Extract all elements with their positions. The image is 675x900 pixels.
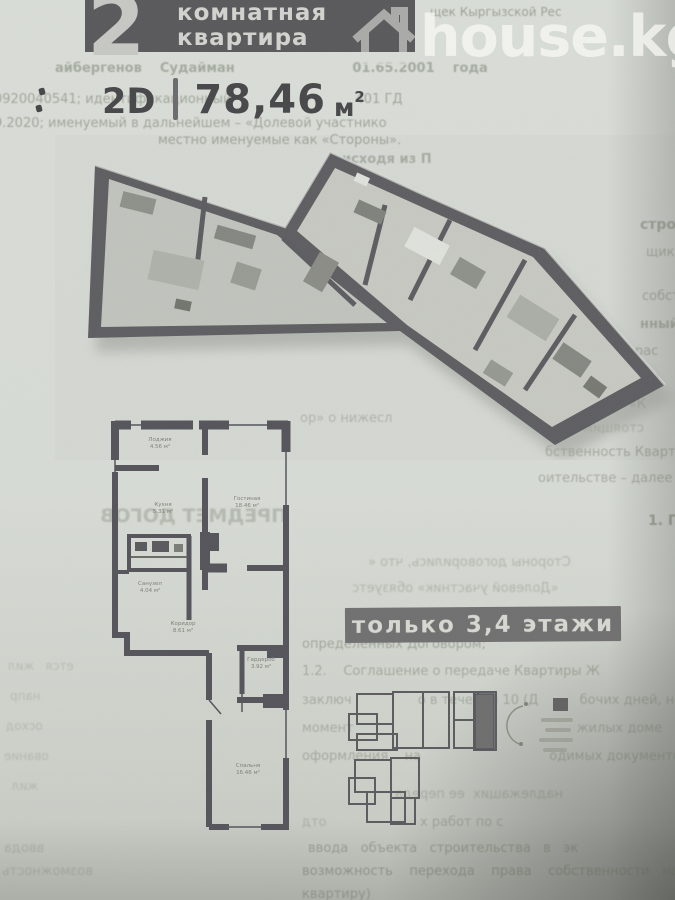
overview-plan xyxy=(345,688,585,888)
room-label: Кухня5.31 м² xyxy=(153,502,173,515)
room-label: Коридор8.61 м² xyxy=(171,621,196,634)
compass-dot-s xyxy=(519,742,523,746)
overview-legend xyxy=(507,698,573,752)
stray-mark xyxy=(36,88,48,114)
compass-dot-n xyxy=(524,702,528,706)
plan-title: 2D 78,46 м2 xyxy=(102,74,365,120)
legend-text-smudge xyxy=(539,718,573,752)
rooms-banner-label: комнатная квартира xyxy=(177,1,327,51)
rooms-banner-line1: комнатная xyxy=(177,1,327,26)
room-label: Гардероб3.92 м² xyxy=(247,657,275,670)
overview-units xyxy=(349,692,496,824)
room-label: Лоджия4.56 м² xyxy=(148,437,171,450)
legend-highlight-swatch xyxy=(553,698,568,711)
house-icon xyxy=(352,5,416,65)
rooms-banner-line2: квартира xyxy=(177,26,327,51)
listing-photo: щек Кыргызской Ресайбергенов Судайман 01… xyxy=(0,0,675,900)
highlighted-unit xyxy=(475,694,494,749)
compass-arc xyxy=(507,706,523,744)
rooms-count: 2 xyxy=(87,0,143,68)
floors-badge: только 3,4 этажи xyxy=(345,606,621,643)
area-unit: м2 xyxy=(334,90,365,120)
area-value: 78,46 xyxy=(194,80,326,120)
watermark-text: house.kg xyxy=(420,4,675,70)
view-label: 2D xyxy=(102,85,155,120)
room-label: Гостиная18.46 м² xyxy=(234,496,261,509)
room-label: Санузел4.04 м² xyxy=(138,581,162,594)
title-divider xyxy=(173,78,178,120)
room-label: Спальня16.46 м² xyxy=(236,763,260,776)
